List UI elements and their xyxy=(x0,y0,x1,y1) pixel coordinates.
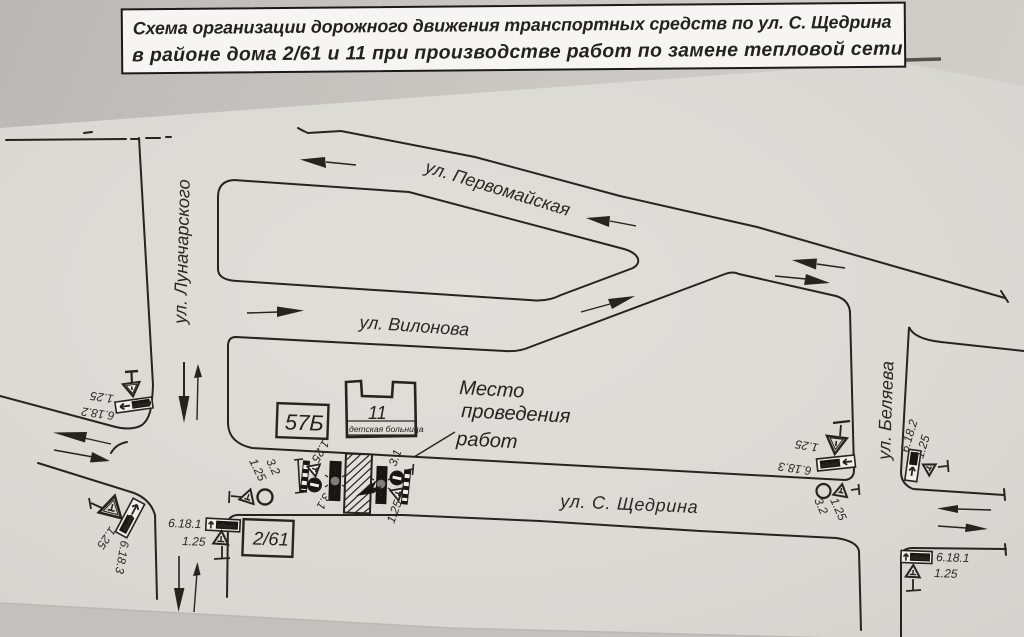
svg-text:57Б: 57Б xyxy=(284,409,324,435)
svg-text:объезд: объезд xyxy=(911,555,929,562)
svg-text:ул. Луначарского: ул. Луначарского xyxy=(170,179,194,326)
svg-text:детская больница: детская больница xyxy=(349,424,424,434)
svg-text:11: 11 xyxy=(368,403,387,423)
svg-text:6.18.1: 6.18.1 xyxy=(936,550,970,565)
svg-text:ул. Беляева: ул. Беляева xyxy=(874,361,898,463)
svg-text:работ: работ xyxy=(455,428,518,453)
svg-text:Место: Место xyxy=(459,377,525,402)
svg-text:объезд: объезд xyxy=(217,523,235,530)
svg-text:1.25: 1.25 xyxy=(934,566,958,581)
svg-text:1.25: 1.25 xyxy=(182,534,206,549)
svg-text:2/61: 2/61 xyxy=(252,527,290,549)
svg-text:6.18.1: 6.18.1 xyxy=(168,516,202,531)
